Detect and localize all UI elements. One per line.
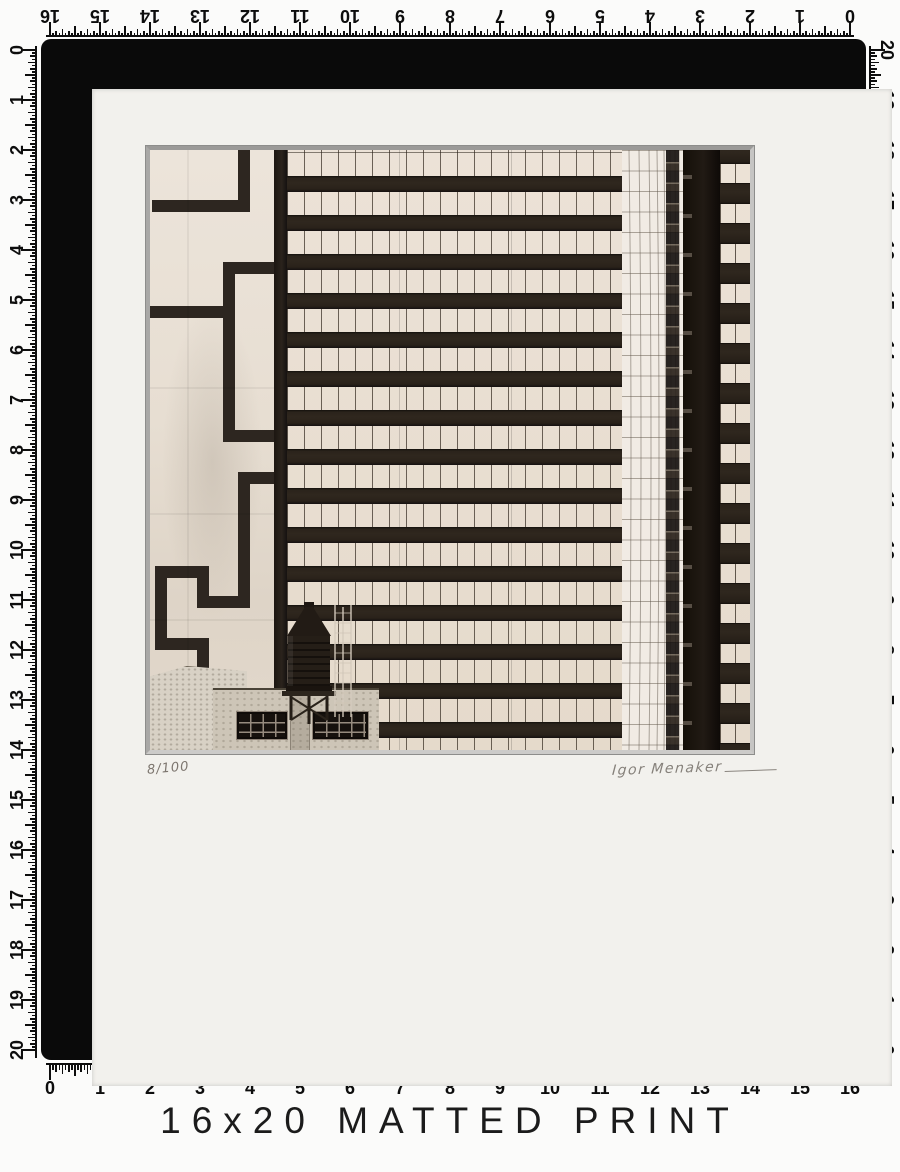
ruler-tick [32,384,37,386]
ruler-tick [268,31,270,38]
ruler-tick [327,33,329,38]
ruler-tick [32,721,37,723]
ruler-tick [30,730,37,732]
ruler-tick [28,412,37,414]
ruler-tick [840,33,842,38]
ruler-tick [784,33,786,38]
ruler-label: 12 [235,6,265,26]
ruler-tick [30,580,37,582]
ruler-tick [32,459,37,461]
ruler-tick [32,684,37,686]
ruler-tick [80,31,82,38]
ruler-tick [30,1043,37,1045]
ruler-tick [21,749,36,751]
ruler-tick [30,493,37,495]
ruler-tick [671,33,673,38]
ruler-tick [30,630,37,632]
ruler-tick [25,774,36,776]
ruler-label: 3 [7,190,27,210]
ruler-tick [421,33,423,38]
ruler-label: 2 [735,6,765,26]
ruler-tick [762,29,764,38]
ruler-tick [537,29,539,38]
photo-content [150,150,750,750]
ruler-tick [32,327,37,329]
ruler-tick [30,993,37,995]
ruler-label: 14 [7,740,27,760]
ruler-tick [680,31,682,38]
ruler-label: 6 [7,340,27,360]
curved-glass-tower [622,150,683,750]
ruler-tick [32,634,37,636]
ruler-tick [430,31,432,38]
ruler-tick [543,31,545,38]
ruler-tick [30,293,37,295]
ruler-tick [25,324,36,326]
ruler-tick [259,33,261,38]
ruler-tick [640,33,642,38]
ruler-tick [32,146,37,148]
ruler-tick [32,927,37,929]
ruler-tick [30,918,37,920]
ruler-tick [84,1065,86,1070]
ruler-tick [659,33,661,38]
ruler-tick [427,33,429,38]
ruler-tick [409,33,411,38]
ruler-tick [25,274,36,276]
ruler-label: 13 [185,6,215,26]
ruler-tick [32,290,37,292]
ruler-tick [434,33,436,38]
ruler-tick [30,743,37,745]
ruler-tick [724,26,726,37]
ruler-tick [32,890,37,892]
ruler-tick [30,180,37,182]
ruler-tick [30,193,37,195]
ruler-tick [32,471,37,473]
ruler-tick [699,22,701,37]
ruler-tick [677,33,679,38]
ruler-tick [30,280,37,282]
ruler-tick [32,234,37,236]
ruler-tick [384,33,386,38]
ruler-tick [393,31,395,38]
ruler-tick [32,809,37,811]
ruler-tick [28,862,37,864]
ruler-tick [32,1046,37,1048]
ruler-tick [32,696,37,698]
ruler-tick [21,49,36,51]
ruler-baseline [35,46,37,1058]
ruler-tick [77,33,79,38]
ruler-tick [32,871,37,873]
ruler-tick [52,33,54,38]
ruler-tick [30,930,37,932]
ruler-tick [99,22,101,37]
ruler-tick [590,33,592,38]
ruler-tick [787,29,789,38]
ruler-tick [759,33,761,38]
ruler-tick [340,33,342,38]
ruler-tick [32,246,37,248]
ruler-label: 10 [7,540,27,560]
ruler-tick [674,26,676,37]
ruler-tick [30,205,37,207]
ruler-tick [28,687,37,689]
ruler-tick [168,31,170,38]
ruler-tick [32,984,37,986]
ruler-tick [870,52,875,54]
ruler-tick [309,33,311,38]
ruler-label: 13 [7,690,27,710]
ruler-tick [32,271,37,273]
ruler-tick [32,859,37,861]
ruler-tick [390,33,392,38]
ruler-tick [362,29,364,38]
ruler-tick [834,33,836,38]
ruler-tick [25,674,36,676]
ruler-tick [870,71,875,73]
ruler-tick [32,477,37,479]
photo [146,146,754,754]
ruler-label: 9 [385,6,415,26]
ruler-tick [587,29,589,38]
ruler-tick [32,1009,37,1011]
ruler-tick [234,33,236,38]
ruler-tick [709,33,711,38]
ruler-tick [32,177,37,179]
ruler-tick [28,837,37,839]
ruler-tick [62,1065,64,1074]
ruler-tick [77,1065,79,1070]
ruler-tick [32,877,37,879]
ruler-tick [524,26,526,37]
ruler-tick [155,31,157,38]
ruler-label: 14 [135,6,165,26]
ruler-tick [32,827,37,829]
ruler-tick [30,343,37,345]
ruler-tick [32,465,37,467]
ruler-tick [218,31,220,38]
ruler-tick [32,434,37,436]
ruler-tick [184,33,186,38]
ruler-tick [55,1065,57,1072]
ruler-tick [718,31,720,38]
ruler-tick [32,209,37,211]
ruler-tick [780,31,782,38]
ruler-tick [28,262,37,264]
ruler-tick [849,22,851,37]
ruler-tick [32,159,37,161]
ruler-tick [870,68,877,70]
ruler-tick [32,359,37,361]
facade-meander-pattern [150,150,280,750]
ruler-tick [30,855,37,857]
ruler-tick [177,33,179,38]
ruler-tick [28,1012,37,1014]
ruler-tick [602,33,604,38]
ruler-tick [584,33,586,38]
ruler-tick [32,1034,37,1036]
ruler-tick [32,284,37,286]
ruler-tick [315,33,317,38]
ruler-tick [612,29,614,38]
ruler-tick [740,33,742,38]
ruler-tick [121,33,123,38]
ruler-tick [90,33,92,38]
ruler-tick [32,959,37,961]
ruler-label: 0 [835,6,865,26]
ruler-tick [277,33,279,38]
ruler-tick [777,33,779,38]
ruler-tick [30,230,37,232]
ruler-tick [28,287,37,289]
ruler-tick [249,22,251,37]
ruler-tick [274,26,276,37]
ruler-tick [540,33,542,38]
ruler-tick [32,584,37,586]
ruler-tick [28,337,37,339]
ruler-tick [437,29,439,38]
ruler-tick [32,659,37,661]
ruler-tick [490,33,492,38]
ruler-tick [32,902,37,904]
ruler-tick [21,399,36,401]
ruler-tick [352,33,354,38]
ruler-tick [115,33,117,38]
ruler-tick [637,29,639,38]
ruler-tick [846,33,848,38]
ruler-tick [32,90,37,92]
ruler-tick [71,1065,73,1070]
ruler-tick [870,49,885,51]
ruler-tick [734,33,736,38]
ruler-tick [870,62,879,64]
ruler-tick [32,202,37,204]
ruler-tick [30,543,37,545]
ruler-tick [655,31,657,38]
ruler-tick [32,690,37,692]
ruler-tick [32,915,37,917]
ruler-tick [25,924,36,926]
ruler-label: 10 [335,6,365,26]
ruler-tick [21,1049,36,1051]
ruler-tick [243,31,245,38]
ruler-tick [190,33,192,38]
ruler-label: 7 [7,390,27,410]
ruler-tick [546,33,548,38]
ruler-tick [32,790,37,792]
ruler-baseline [46,35,854,37]
ruler-tick [25,124,36,126]
ruler-tick [32,777,37,779]
ruler-tick [32,909,37,911]
ruler-label: 19 [7,990,27,1010]
ruler-tick [30,130,37,132]
ruler-label: 9 [7,490,27,510]
ruler-tick [324,26,326,37]
ruler-tick [715,33,717,38]
ruler-tick [32,334,37,336]
ruler-tick [30,68,37,70]
ruler-tick [32,896,37,898]
ruler-tick [32,646,37,648]
ruler-tick [32,759,37,761]
ruler-tick [649,22,651,37]
ruler-tick [802,33,804,38]
ruler-tick [271,33,273,38]
ruler-tick [30,268,37,270]
ruler-tick [771,33,773,38]
ruler-tick [746,33,748,38]
ruler-tick [32,215,37,217]
ruler-tick [299,22,301,37]
ruler-tick [32,534,37,536]
ruler-tick [318,31,320,38]
ruler-tick [49,1065,51,1080]
ruler-tick [32,71,37,73]
ruler-tick [30,530,37,532]
ruler-tick [30,305,37,307]
ruler-tick [727,33,729,38]
ruler-tick [293,31,295,38]
ruler-tick [765,33,767,38]
ruler-tick [30,455,37,457]
ruler-tick [246,33,248,38]
ruler-tick [459,33,461,38]
ruler-label: 16 [35,6,65,26]
ruler-tick [302,33,304,38]
ruler-tick [28,462,37,464]
ruler-tick [574,26,576,37]
ruler-tick [32,502,37,504]
ruler-tick [109,33,111,38]
ruler-tick [30,380,37,382]
ruler-tick [68,1065,70,1072]
ruler-tick [32,65,37,67]
ruler-tick [32,340,37,342]
ruler-tick [662,29,664,38]
ruler-tick [30,1005,37,1007]
ruler-tick [32,321,37,323]
ruler-tick [30,505,37,507]
ruler-tick [32,677,37,679]
ruler-tick [32,602,37,604]
ruler-tick [21,949,36,951]
ruler-tick [870,84,875,86]
ruler-tick [30,818,37,820]
ruler-tick [32,640,37,642]
ruler-tick [28,537,37,539]
ruler-tick [55,31,57,38]
ruler-tick [496,33,498,38]
ruler-tick [32,884,37,886]
ruler-tick [28,962,37,964]
ruler-tick [499,22,501,37]
ruler-tick [25,74,36,76]
ruler-tick [21,699,36,701]
ruler-tick [93,31,95,38]
ruler-tick [221,33,223,38]
ruler-tick [193,31,195,38]
water-tower [278,602,340,724]
ruler-tick [870,59,875,61]
ruler-tick [824,26,826,37]
ruler-tick [32,715,37,717]
ruler-tick [21,349,36,351]
ruler-tick [693,31,695,38]
ruler-tick [552,33,554,38]
banded-tower-right [720,150,750,750]
ruler-tick [374,26,376,37]
ruler-tick [32,609,37,611]
ruler-tick [818,31,820,38]
ruler-tick [462,29,464,38]
ruler-tick [32,165,37,167]
ruler-tick [452,33,454,38]
ruler-tick [424,26,426,37]
ruler-tick [32,396,37,398]
ruler-tick [28,937,37,939]
ruler-tick [118,31,120,38]
ruler-tick [415,33,417,38]
ruler-tick [396,33,398,38]
ruler-tick [32,946,37,948]
ruler-tick [32,509,37,511]
ruler-tick [624,26,626,37]
ruler-tick [596,33,598,38]
ruler-label: 2 [7,140,27,160]
ruler-tick [468,31,470,38]
ruler-tick [32,184,37,186]
ruler-tick [805,31,807,38]
ruler-tick [28,87,37,89]
ruler-tick [443,31,445,38]
ruler-tick [793,31,795,38]
ruler-tick [30,155,37,157]
ruler-tick [28,137,37,139]
ruler-tick [209,33,211,38]
ruler-tick [134,33,136,38]
ruler-tick [830,31,832,38]
ruler-tick [30,693,37,695]
ruler-tick [32,252,37,254]
ruler-tick [870,77,875,79]
ruler-tick [32,990,37,992]
ruler-tick [870,55,877,57]
ruler-tick [593,31,595,38]
ruler-tick [32,427,37,429]
ruler-tick [32,521,37,523]
ruler-tick [140,33,142,38]
ruler-tick [809,33,811,38]
ruler-tick [312,29,314,38]
ruler-tick [32,652,37,654]
ruler-tick [28,1037,37,1039]
ruler-tick [493,31,495,38]
ruler-tick [32,302,37,304]
ruler-tick [84,33,86,38]
ruler-tick [705,31,707,38]
ruler-tick [827,33,829,38]
ruler-label: 4 [635,6,665,26]
ruler-tick [30,1030,37,1032]
ruler-tick [196,33,198,38]
ruler-tick [174,26,176,37]
ruler-tick [702,33,704,38]
ruler-tick [25,724,36,726]
ruler-label: 7 [485,6,515,26]
